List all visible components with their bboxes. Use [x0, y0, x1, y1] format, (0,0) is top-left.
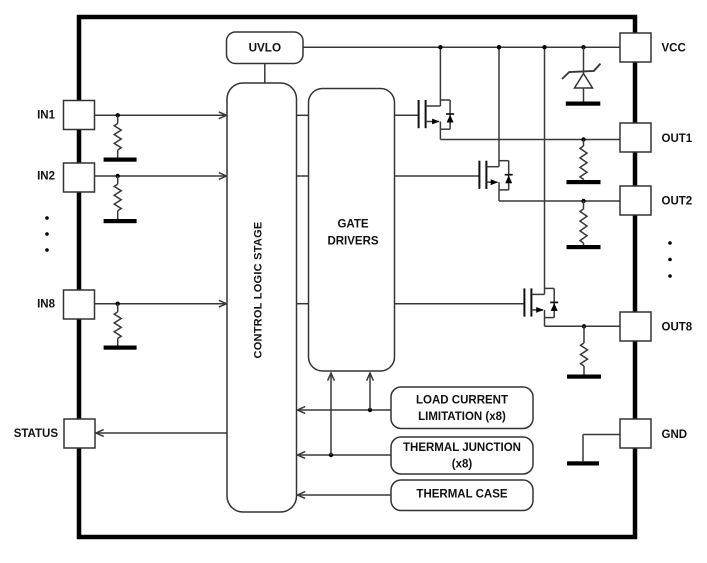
svg-text:IN8: IN8 [37, 298, 56, 310]
svg-text:OUT1: OUT1 [662, 133, 693, 145]
svg-text:GATE: GATE [337, 219, 368, 231]
svg-text:STATUS: STATUS [14, 428, 59, 440]
svg-text:THERMAL JUNCTION: THERMAL JUNCTION [403, 442, 521, 454]
svg-text:LIMITATION (x8): LIMITATION (x8) [418, 411, 506, 423]
svg-text:VCC: VCC [662, 43, 686, 55]
svg-text:LOAD CURRENT: LOAD CURRENT [416, 395, 508, 407]
svg-text:(x8): (x8) [452, 459, 473, 471]
svg-text:IN2: IN2 [37, 171, 55, 183]
svg-text:IN1: IN1 [37, 110, 56, 122]
svg-text:GND: GND [662, 429, 688, 441]
svg-text:OUT2: OUT2 [662, 196, 693, 208]
svg-text:UVLO: UVLO [249, 42, 281, 55]
svg-text:THERMAL CASE: THERMAL CASE [416, 489, 507, 501]
svg-text:DRIVERS: DRIVERS [327, 236, 378, 248]
svg-text:OUT8: OUT8 [662, 322, 693, 334]
svg-text:CONTROL LOGIC STAGE: CONTROL LOGIC STAGE [253, 222, 265, 359]
